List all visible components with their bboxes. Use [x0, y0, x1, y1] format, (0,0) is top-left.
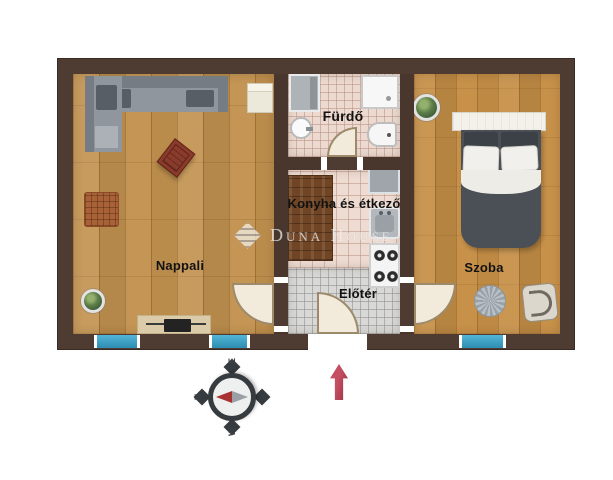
wall-hall-bedroom: [400, 74, 414, 283]
compass-west-label: W: [227, 428, 237, 437]
bed: [461, 130, 541, 248]
compass-north-label: N: [193, 394, 203, 401]
wall-bath-kitchen: [357, 157, 400, 170]
armchair: [247, 83, 273, 113]
window: [459, 335, 506, 348]
red-arrow-icon: [330, 364, 348, 400]
tv-stand: [137, 315, 211, 334]
watermark: Duna House: [234, 222, 393, 249]
kitchen-label: Konyha és étkező: [286, 196, 402, 211]
bed-headboard: [452, 112, 546, 131]
compass-rose-icon: N E S W: [194, 359, 270, 435]
door-jamb: [357, 157, 363, 170]
watermark-text: Duna House: [270, 225, 393, 246]
washing-machine: [289, 74, 320, 112]
door-jamb: [274, 326, 288, 332]
shower: [361, 75, 399, 109]
sofa-chaise: [85, 76, 122, 152]
entry-opening: [314, 334, 361, 350]
window: [94, 335, 140, 348]
round-rug: [474, 285, 506, 317]
door-jamb: [274, 277, 288, 283]
plant: [413, 94, 440, 121]
door-jamb: [400, 326, 414, 332]
bathroom-label: Fürdő: [310, 108, 376, 124]
door-jamb: [321, 157, 327, 170]
hall-label: Előtér: [326, 286, 390, 301]
compass-south-label: S: [261, 394, 271, 400]
bedroom-label: Szoba: [452, 260, 516, 275]
stove: [369, 243, 400, 288]
wall-living-hall: [274, 74, 288, 283]
bedroom-armchair: [521, 282, 559, 322]
window: [209, 335, 250, 348]
plant: [81, 289, 105, 313]
bathroom-sink: [290, 117, 312, 139]
door-jamb: [400, 277, 414, 283]
toilet: [367, 122, 397, 147]
living-room-label: Nappali: [140, 258, 220, 273]
compass-east-label: E: [227, 358, 237, 364]
door-jamb: [308, 334, 314, 350]
watermark-logo-icon: [234, 222, 261, 249]
door-jamb: [361, 334, 367, 350]
floorplan-image: Nappali Fürdő Konyha és étkező Előtér Sz…: [0, 0, 613, 480]
rug: [84, 192, 119, 227]
